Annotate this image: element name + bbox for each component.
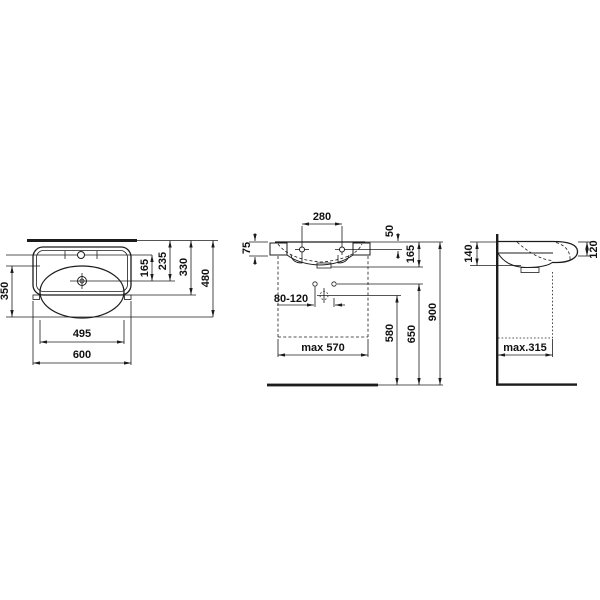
dim-label-140: 140 — [463, 244, 475, 262]
dim-label-280: 280 — [313, 211, 331, 223]
dim-165-top: 165 — [139, 255, 152, 281]
dim-label-330: 330 — [178, 258, 190, 276]
dim-label-75: 75 — [241, 242, 253, 254]
side-front-bulge — [552, 242, 578, 263]
floor-line — [267, 384, 378, 387]
dim-650: 650 — [406, 284, 419, 385]
drawing-svg: 350 495 600 165 235 330 — [0, 0, 600, 600]
mount-tab-right — [125, 295, 132, 300]
dim-label-480: 480 — [200, 269, 212, 287]
wall-edge — [27, 239, 137, 242]
dim-900: 900 — [427, 242, 440, 385]
dim-label-50: 50 — [384, 225, 396, 237]
dim-label-165-top: 165 — [139, 259, 151, 277]
side-bulge-hidden — [556, 243, 570, 262]
dim-480: 480 — [200, 241, 213, 318]
front-view: 280 75 50 165 — [241, 211, 443, 386]
supply-point-left — [313, 282, 317, 286]
dim-label-120: 120 — [588, 240, 600, 258]
dim-80-120: 80-120 — [274, 287, 345, 307]
dim-165-front: 165 — [331, 242, 423, 267]
top-view: 350 495 600 165 235 330 — [0, 239, 218, 365]
basin-bowl-hidden — [278, 244, 362, 262]
dim-235: 235 — [157, 241, 170, 282]
wall-line — [496, 234, 498, 384]
basin-apron — [287, 255, 353, 265]
dim-label-235: 235 — [157, 252, 169, 270]
tap-hole-front-right — [340, 247, 345, 252]
drain-tab — [317, 263, 331, 268]
dim-label-495: 495 — [73, 328, 91, 340]
dim-140: 140 — [463, 242, 521, 266]
dim-label-max315: max.315 — [503, 342, 546, 354]
dim-495: 495 — [40, 320, 124, 344]
supply-point-right — [332, 282, 336, 286]
dim-280: 280 — [302, 211, 342, 244]
dim-max315: max.315 — [498, 339, 553, 357]
dim-75: 75 — [241, 233, 268, 265]
dim-label-580: 580 — [384, 324, 396, 342]
side-bowl-hidden — [517, 242, 552, 261]
dim-50: 50 — [365, 225, 443, 259]
dim-label-900: 900 — [427, 303, 439, 321]
wing-right — [353, 243, 370, 255]
dim-max570: max 570 — [278, 339, 368, 357]
side-drain-box — [521, 268, 539, 273]
tap-hole-front-left — [300, 247, 305, 252]
dim-580: 580 — [384, 296, 397, 386]
technical-drawing: 350 495 600 165 235 330 — [0, 0, 600, 600]
mount-tab-left — [33, 295, 40, 300]
dim-label-165-front: 165 — [405, 245, 417, 263]
tap-hole — [78, 252, 85, 259]
dim-label-600: 600 — [73, 349, 91, 361]
dim-label-80-120: 80-120 — [274, 293, 308, 305]
dim-label-350: 350 — [0, 282, 11, 300]
dim-120: 120 — [578, 240, 600, 258]
side-floor-line — [496, 383, 577, 385]
dim-label-650: 650 — [406, 325, 418, 343]
side-view: 140 120 max.315 — [463, 234, 600, 386]
dim-label-max570: max 570 — [301, 342, 344, 354]
